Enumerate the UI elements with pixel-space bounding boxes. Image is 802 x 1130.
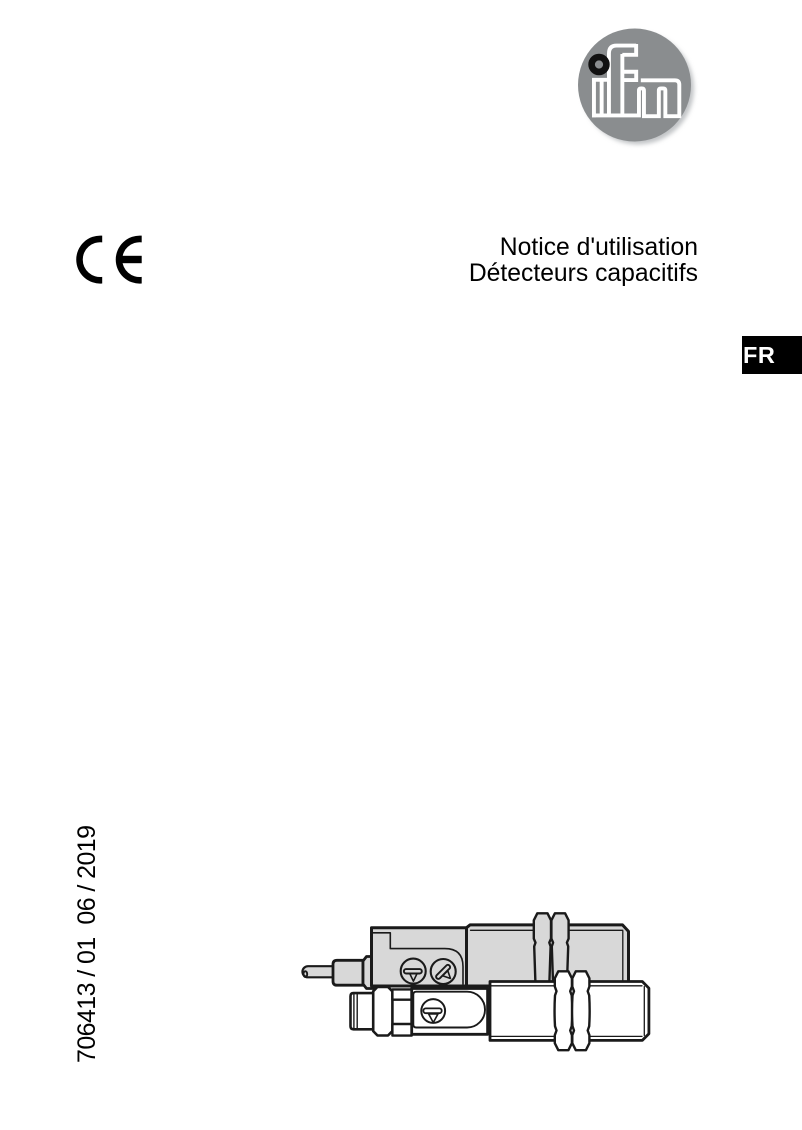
svg-text:706413 / 01 06 / 2019: 706413 / 01 06 / 2019 [73,825,101,1063]
